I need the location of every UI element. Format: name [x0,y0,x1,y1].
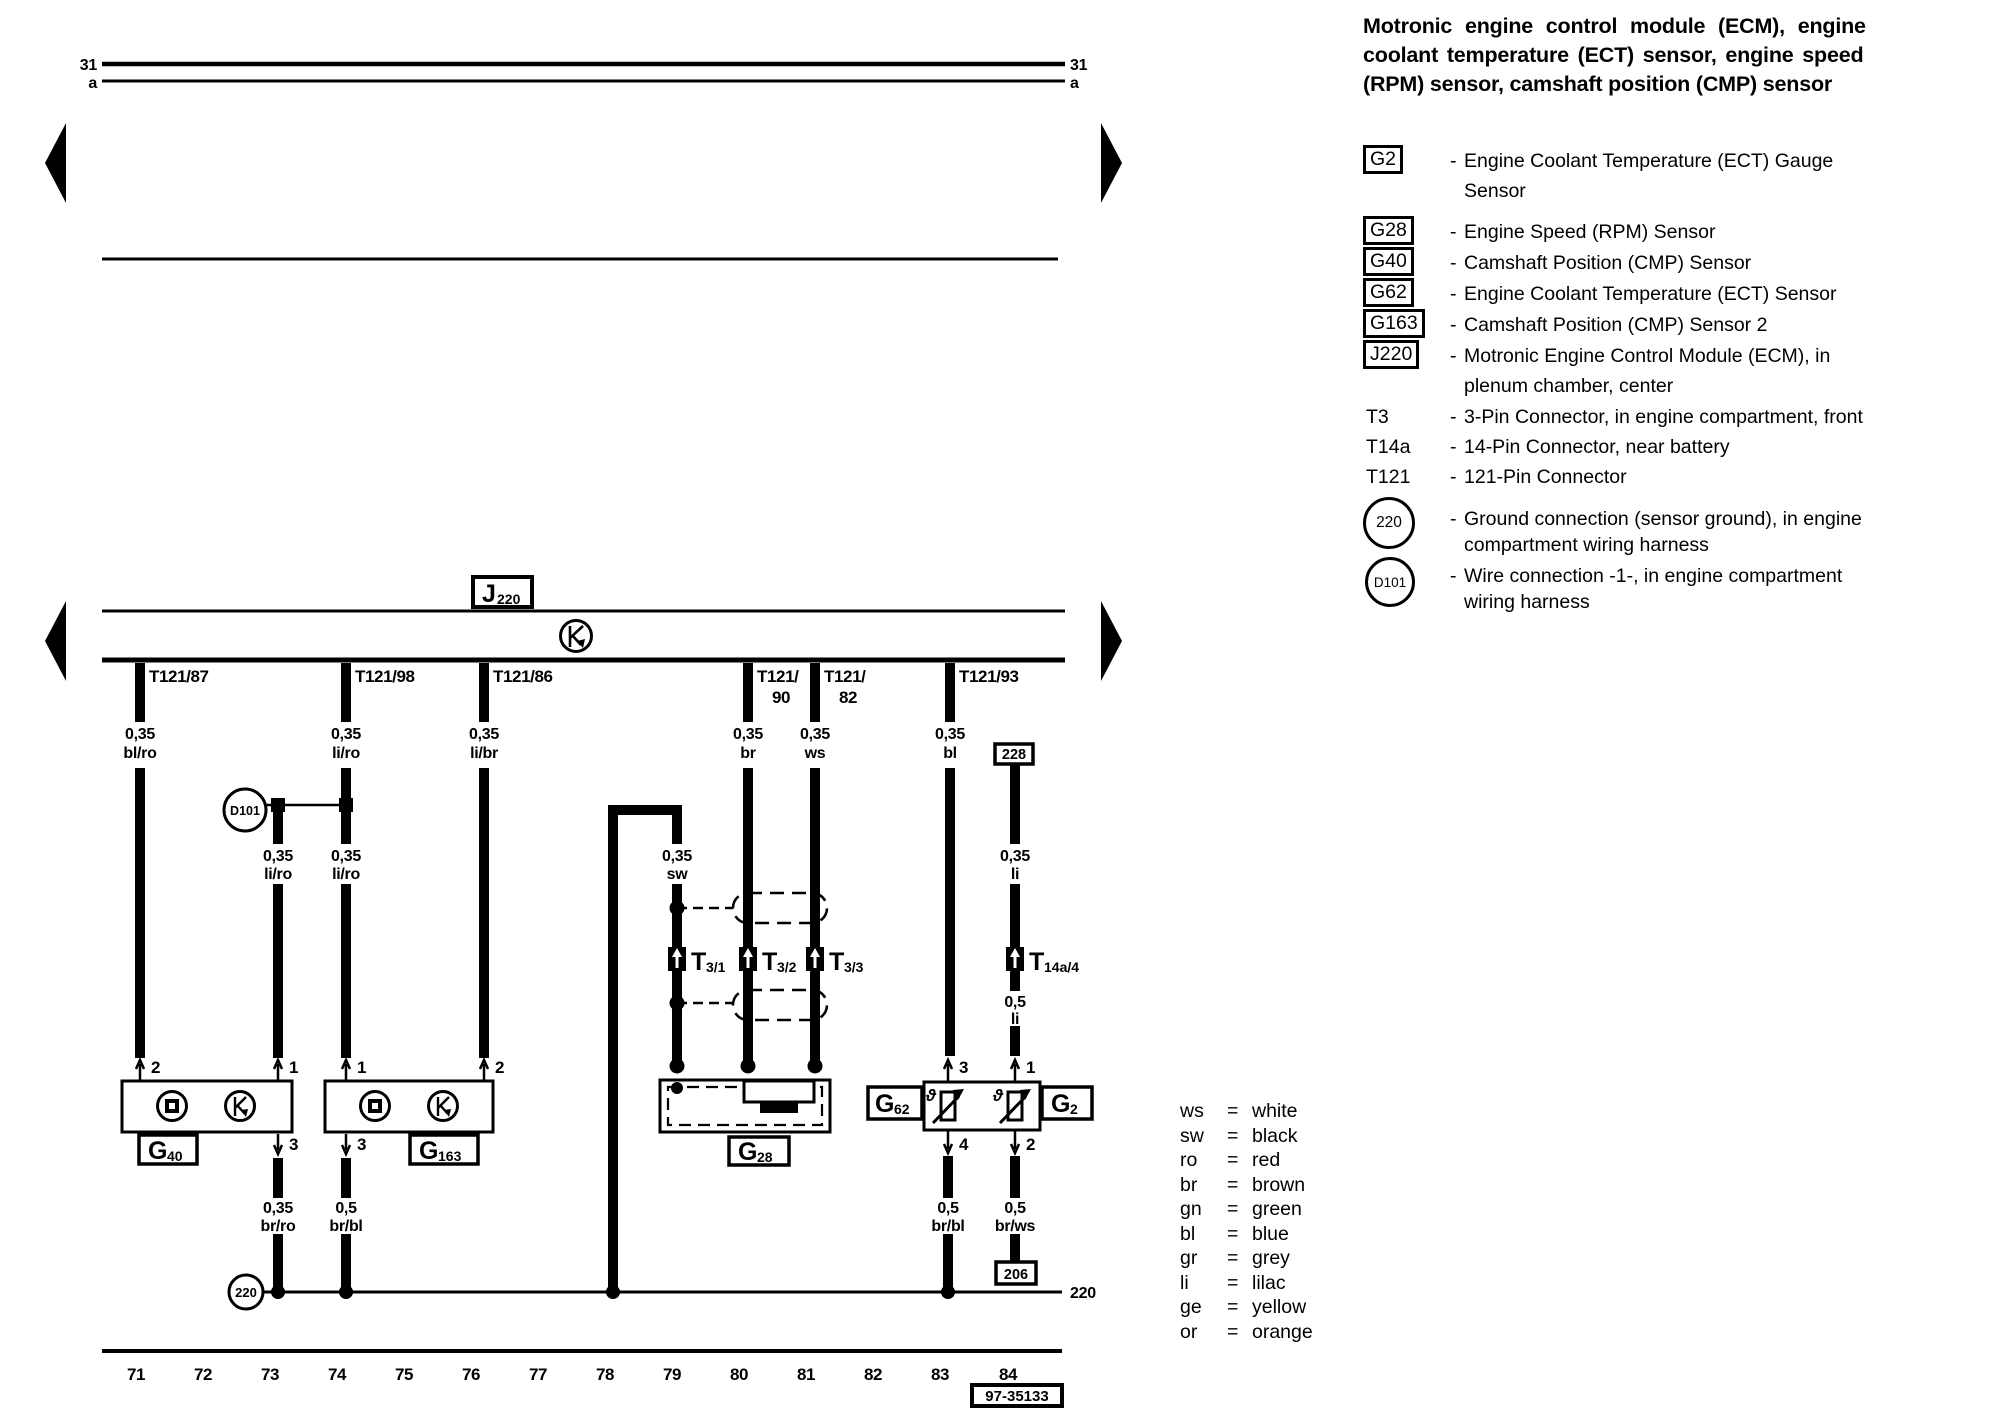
svg-text:73: 73 [261,1365,279,1384]
g2-label-sub: 2 [1070,1101,1078,1117]
j220-label-main: J [482,580,496,608]
svg-text:78: 78 [596,1365,614,1384]
svg-text:0,35: 0,35 [263,1200,293,1217]
ground-220-circle-label: 220 [235,1285,257,1300]
ecm-contact-symbol [561,621,592,652]
connector-t3-3-sub: 3/3 [844,959,864,975]
svg-text:bl: bl [943,745,957,762]
pin-number-g163-2: 2 [495,1058,504,1077]
legend-circle-d101: D101 [1365,557,1415,607]
svg-text:0,35: 0,35 [935,726,965,743]
color-key-br: br=brown [1180,1174,1313,1199]
svg-text:0,35: 0,35 [800,726,830,743]
connector-t14a-4-sub: 14a/4 [1044,959,1079,975]
title-line-1: Motronic engine control module (ECM), en… [1363,12,1973,41]
color-key-ws: ws=white [1180,1100,1313,1125]
svg-text:83: 83 [931,1365,949,1384]
pin-number-g2-2: 2 [1026,1135,1035,1154]
pin-label-t121-82b: 82 [839,688,857,707]
svg-text:82: 82 [864,1365,882,1384]
g28-label-main: G [738,1138,757,1166]
g163-label-main: G [419,1137,438,1165]
connector-t3-3-label: T [829,948,844,976]
svg-text:0,5: 0,5 [335,1200,357,1217]
svg-text:0,35: 0,35 [125,726,155,743]
color-key-li: li=lilac [1180,1272,1313,1297]
g2-label-main: G [1051,1090,1070,1118]
rail-a-label-right: a [1070,75,1079,92]
color-key-gr: gr=grey [1180,1247,1313,1272]
connector-t3-2-sub: 3/2 [777,959,797,975]
svg-text:80: 80 [730,1365,748,1384]
legend-code-g28: G28 [1363,216,1414,245]
svg-text:ws: ws [804,745,826,762]
component-g163: G 163 [325,1081,493,1165]
continuation-arrow-right-ecm [1101,601,1122,681]
connector-t3-1-label: T [691,948,706,976]
g62-label-sub: 62 [894,1101,910,1117]
svg-text:0,35: 0,35 [1000,848,1030,865]
svg-text:li/ro: li/ro [264,866,292,883]
svg-text:81: 81 [797,1365,815,1384]
rail-a: a a [88,75,1079,92]
svg-text:li/ro: li/ro [332,745,360,762]
component-g28: G 28 [660,1059,830,1167]
svg-text:79: 79 [663,1365,681,1384]
continuation-arrow-right-top [1101,123,1122,203]
pin-number-g2-1: 1 [1026,1058,1035,1077]
ground-bus-220: 220 220 [229,1275,1096,1309]
color-key-gn: gn=green [1180,1198,1313,1223]
svg-text:ϑ: ϑ [992,1086,1004,1105]
svg-text:li/br: li/br [470,745,498,762]
pin-number-g40-3: 3 [289,1135,298,1154]
g62-label-main: G [875,1090,894,1118]
svg-text:br/bl: br/bl [329,1218,362,1235]
svg-text:71: 71 [127,1365,145,1384]
wiring-diagram-page: 31 31 a a J 220 T121/87 T121/98 T [0,0,2000,1408]
component-g62-g2: ϑ ϑ G 62 G 2 [868,1082,1092,1130]
svg-text:75: 75 [395,1365,413,1384]
legend-code-g62: G62 [1363,278,1414,307]
d101-wire-connection: D101 [224,789,353,831]
title-line-2: coolant temperature (ECT) sensor, engine… [1363,41,1973,70]
svg-text:77: 77 [529,1365,547,1384]
continuation-arrow-left-top [45,123,66,203]
connector-t14a-4-label: T [1029,948,1044,976]
svg-text:76: 76 [462,1365,480,1384]
pin-label-t121-86: T121/86 [493,667,553,686]
track-ruler: 71 72 73 74 75 76 77 78 79 80 81 82 83 8… [102,1351,1062,1384]
g40-label-main: G [148,1137,167,1165]
rail-31-label-left: 31 [80,57,98,74]
color-key-sw: sw=black [1180,1125,1313,1150]
color-key-ge: ge=yellow [1180,1296,1313,1321]
svg-text:0,35: 0,35 [733,726,763,743]
title-line-3: (RPM) sensor, camshaft position (CMP) se… [1363,70,1973,99]
legend-code-g163: G163 [1363,309,1425,338]
color-key-ro: ro=red [1180,1149,1313,1174]
svg-text:br/ws: br/ws [995,1218,1036,1235]
color-key-or: or=orange [1180,1321,1313,1346]
pin-label-t121-87: T121/87 [149,667,209,686]
pin-number-g163-3: 3 [357,1135,366,1154]
g28-label-sub: 28 [757,1149,773,1165]
pin-label-t121-82a: T121/ [824,667,866,686]
pin-number-g40-1: 1 [289,1058,298,1077]
rail-31: 31 31 [80,57,1088,74]
svg-text:0,5: 0,5 [937,1200,959,1217]
wire-color-key: ws=white sw=black ro=red br=brown gn=gre… [1180,1100,1313,1345]
svg-text:br/ro: br/ro [261,1218,296,1235]
svg-text:72: 72 [194,1365,212,1384]
svg-text:0,35: 0,35 [331,726,361,743]
junction-dot [670,901,685,916]
diagram-ref-box: 97-35133 [972,1385,1062,1406]
svg-text:ϑ: ϑ [925,1086,937,1105]
legend-code-t121: T121 [1366,466,1410,489]
pin-number-g40-2: 2 [151,1058,160,1077]
svg-text:0,35: 0,35 [662,848,692,865]
diagram-ref-number: 97-35133 [985,1388,1048,1405]
legend-code-t14a: T14a [1366,436,1410,459]
svg-text:0,35: 0,35 [263,848,293,865]
pin-number-g163-1: 1 [357,1058,366,1077]
continuation-arrow-left-ecm [45,601,66,681]
svg-text:bl/ro: bl/ro [123,745,157,762]
legend-code-t3: T3 [1366,406,1389,429]
svg-text:br: br [740,745,755,762]
component-g40: G 40 [122,1081,292,1165]
page-title: Motronic engine control module (ECM), en… [1363,12,1973,99]
color-key-bl: bl=blue [1180,1223,1313,1248]
connector-t3-1-sub: 3/1 [706,959,726,975]
label-206: 206 [1004,1267,1028,1283]
svg-text:br/bl: br/bl [931,1218,964,1235]
rail-a-label-left: a [88,75,97,92]
connector-t3-2-label: T [762,948,777,976]
label-228: 228 [1002,747,1026,763]
d101-circle-label: D101 [230,804,260,818]
pin-label-t121-98: T121/98 [355,667,415,686]
svg-text:0,5: 0,5 [1004,1200,1026,1217]
ecm-j220-band: J 220 [102,577,1065,660]
rail-31-label-right: 31 [1070,57,1088,74]
svg-text:84: 84 [999,1365,1018,1384]
svg-text:0,5: 0,5 [1004,994,1026,1011]
pin-label-t121-90a: T121/ [757,667,799,686]
ground-bus-label: 220 [1070,1285,1096,1302]
svg-text:li/ro: li/ro [332,866,360,883]
junction-dot [670,996,685,1011]
pin-number-g62-3: 3 [959,1058,968,1077]
pin-label-t121-93: T121/93 [959,667,1019,686]
svg-text:sw: sw [667,866,689,883]
j220-label-sub: 220 [497,591,521,607]
circuit-diagram: 31 31 a a J 220 T121/87 T121/98 T [0,0,1130,1408]
svg-text:li: li [1011,1011,1019,1028]
g163-label-sub: 163 [438,1148,462,1164]
svg-text:li: li [1011,866,1019,883]
legend-circle-220: 220 [1363,497,1415,549]
svg-text:74: 74 [328,1365,347,1384]
legend-code-g40: G40 [1363,247,1414,276]
pin-label-t121-90b: 90 [772,688,790,707]
wires [140,663,1015,1290]
plus-228-box: 228 [995,744,1033,764]
g40-label-sub: 40 [167,1148,183,1164]
gnd-206-box: 206 [996,1262,1036,1284]
svg-text:0,35: 0,35 [331,848,361,865]
pin-number-g62-4: 4 [959,1135,969,1154]
svg-text:0,35: 0,35 [469,726,499,743]
legend-code-j220: J220 [1363,340,1419,369]
legend-code-g2: G2 [1363,145,1403,174]
